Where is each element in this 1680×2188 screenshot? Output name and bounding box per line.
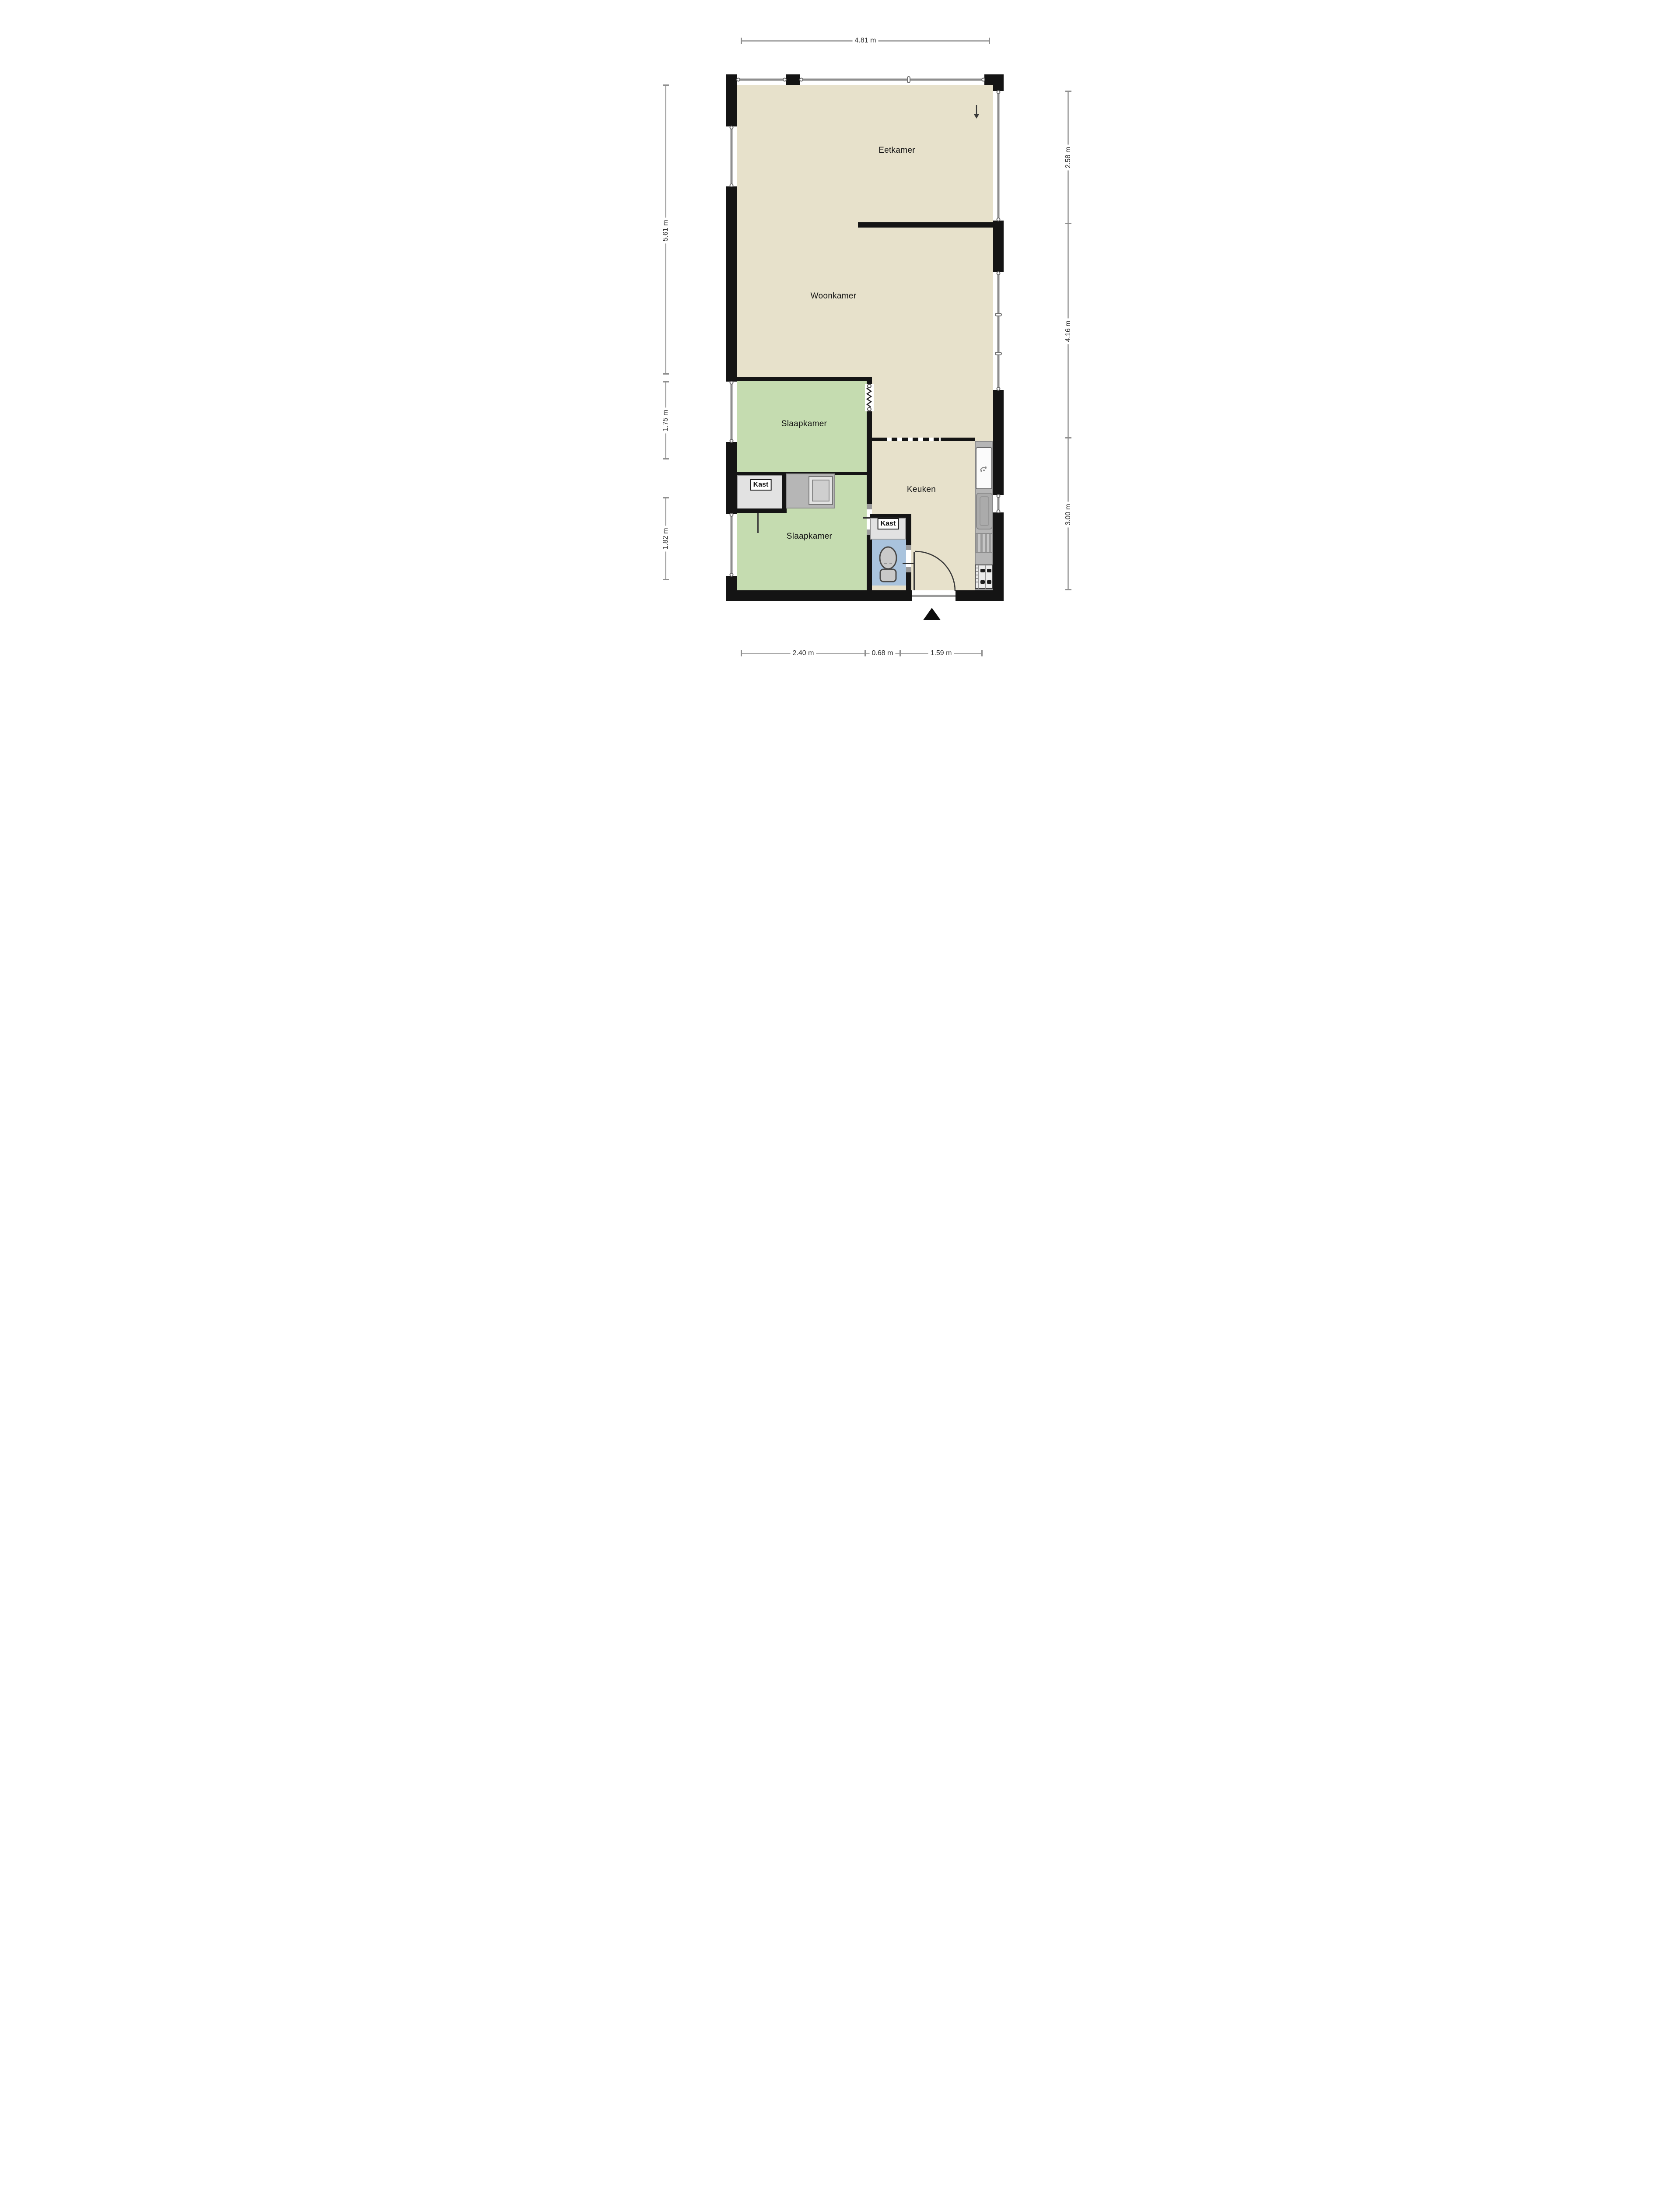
- window-right-woonkamer: [993, 272, 1004, 390]
- window-glass: [801, 79, 983, 81]
- window-cap: [997, 509, 1001, 513]
- window-cap: [730, 381, 734, 385]
- dim-tick: [663, 458, 669, 459]
- window-cap: [981, 78, 985, 82]
- dim-label-right-2: 4.16 m: [1064, 319, 1073, 344]
- washbasin-icon: [808, 476, 833, 505]
- door-jamb: [906, 545, 911, 550]
- dim-tick: [741, 650, 742, 656]
- dim-label-left-3: 1.82 m: [661, 526, 670, 552]
- wall-slaapkamer-boven-top: [737, 377, 872, 381]
- label-kast-onder: Kast: [878, 518, 899, 529]
- toilet-icon: [876, 544, 900, 584]
- flow-arrow-icon: [973, 104, 980, 119]
- dim-label-left-1: 5.61 m: [661, 218, 670, 244]
- dim-tick: [663, 373, 669, 375]
- wall-top-pier: [786, 74, 800, 85]
- window-cap: [997, 90, 1001, 94]
- window-glass: [731, 515, 733, 575]
- dim-label-right-1: 2.58 m: [1064, 145, 1073, 171]
- window-cap: [730, 573, 734, 577]
- wall-bottom-left: [726, 590, 912, 601]
- sink-basin-inner: [980, 496, 989, 526]
- door-jamb: [906, 567, 911, 572]
- wall-left-kast-row: [726, 442, 737, 514]
- window-mullion: [907, 76, 910, 83]
- opening-dashed-keuken: [881, 438, 941, 441]
- wall-right-mid2: [993, 390, 1004, 495]
- wall-slaapkamer-onder-right-a: [867, 475, 872, 504]
- wall-left-upper-corner: [726, 74, 737, 126]
- wall-keuken-top-b: [941, 438, 975, 441]
- label-woonkamer: Woonkamer: [811, 291, 857, 301]
- window-glass: [731, 383, 733, 441]
- dim-label-top: 4.81 m: [853, 36, 878, 45]
- label-slaapkamer-boven: Slaapkamer: [781, 419, 827, 429]
- wall-bottom-right: [955, 590, 1004, 601]
- window-cap: [783, 78, 787, 82]
- window-left-woonkamer: [726, 126, 737, 186]
- window-left-slaapkamer-boven: [726, 382, 737, 442]
- wall-keuken-top-a: [870, 438, 881, 441]
- dim-tick: [663, 497, 669, 498]
- wall-toilet-right-a: [906, 514, 911, 545]
- label-keuken: Keuken: [907, 485, 936, 494]
- sink-basin: [976, 493, 993, 529]
- window-glass: [997, 496, 1000, 511]
- stove-icon: [975, 565, 993, 589]
- window-glass: [738, 79, 784, 81]
- door-tick: [903, 563, 915, 564]
- wall-slaapkamer-boven-right-b: [867, 411, 872, 475]
- washbasin-bowl: [812, 480, 829, 501]
- dim-tick: [899, 650, 901, 656]
- threshold-line: [912, 595, 955, 597]
- dim-tick: [663, 84, 669, 86]
- window-cap: [997, 387, 1001, 391]
- dim-label-right-3: 3.00 m: [1064, 502, 1073, 528]
- dim-tick: [663, 579, 669, 580]
- wall-left-woonkamer: [726, 186, 737, 382]
- window-cap: [730, 126, 734, 130]
- window-cap: [997, 271, 1001, 275]
- accordion-door: [865, 384, 874, 411]
- wall-kast-onder-top: [870, 514, 911, 518]
- wall-slaapkamer-boven-right-a: [867, 377, 872, 384]
- dim-label-bottom-2: 0.68 m: [870, 649, 896, 658]
- window-glass: [997, 92, 1000, 219]
- window-mullion: [995, 313, 1002, 316]
- wall-slaapkamer-onder-right-b: [867, 535, 872, 590]
- wall-right-mid1: [993, 221, 1004, 272]
- window-cap: [730, 183, 734, 187]
- accordion-door-icon: [865, 384, 874, 411]
- window-cap: [997, 217, 1001, 221]
- window-right-keuken: [993, 495, 1004, 512]
- window-cap: [730, 513, 734, 517]
- label-kast-boven: Kast: [750, 479, 772, 491]
- dim-tick: [989, 38, 990, 44]
- dim-tick: [663, 381, 669, 382]
- dim-tick: [1065, 91, 1071, 92]
- window-cap: [799, 78, 803, 82]
- window-glass: [731, 128, 733, 185]
- dim-tick: [864, 650, 866, 656]
- dim-label-bottom-1: 2.40 m: [791, 649, 816, 658]
- window-cap: [736, 78, 740, 82]
- label-eetkamer: Eetkamer: [878, 146, 915, 155]
- tap-icon: [978, 463, 990, 474]
- window-right-eetkamer: [993, 91, 1004, 221]
- wall-kast-bottom: [737, 508, 787, 513]
- door-jamb: [867, 504, 872, 509]
- dim-tick: [981, 650, 983, 656]
- window-glass: [997, 273, 1000, 389]
- window-top-large: [800, 74, 984, 85]
- wall-toilet-right-b: [906, 572, 911, 590]
- floorplan-page: Eetkamer Woonkamer Slaapkamer Slaapkamer…: [588, 0, 1092, 673]
- wall-right-lower: [993, 512, 1004, 601]
- window-cap: [997, 494, 1001, 498]
- entry-door-swing: [914, 551, 955, 591]
- label-slaapkamer-onder: Slaapkamer: [787, 532, 832, 541]
- kitchen-sink-unit: [976, 447, 992, 489]
- window-cap: [730, 439, 734, 443]
- kast-door-leaf: [757, 513, 759, 533]
- window-left-slaapkamer-onder: [726, 514, 737, 576]
- door-toilet: [906, 545, 911, 572]
- drainer-rack: [975, 533, 993, 553]
- dim-tick: [1065, 589, 1071, 590]
- window-top-small: [737, 74, 786, 85]
- wall-eetkamer-woonkamer-stub: [858, 222, 993, 228]
- dim-label-left-2: 1.75 m: [661, 408, 670, 434]
- window-mullion: [995, 352, 1002, 355]
- wall-right-upper-corner: [993, 74, 1004, 91]
- entrance-marker-icon: [923, 608, 941, 620]
- dim-label-bottom-3: 1.59 m: [928, 649, 954, 658]
- dim-tick: [741, 38, 742, 44]
- entry-door-threshold: [912, 590, 955, 601]
